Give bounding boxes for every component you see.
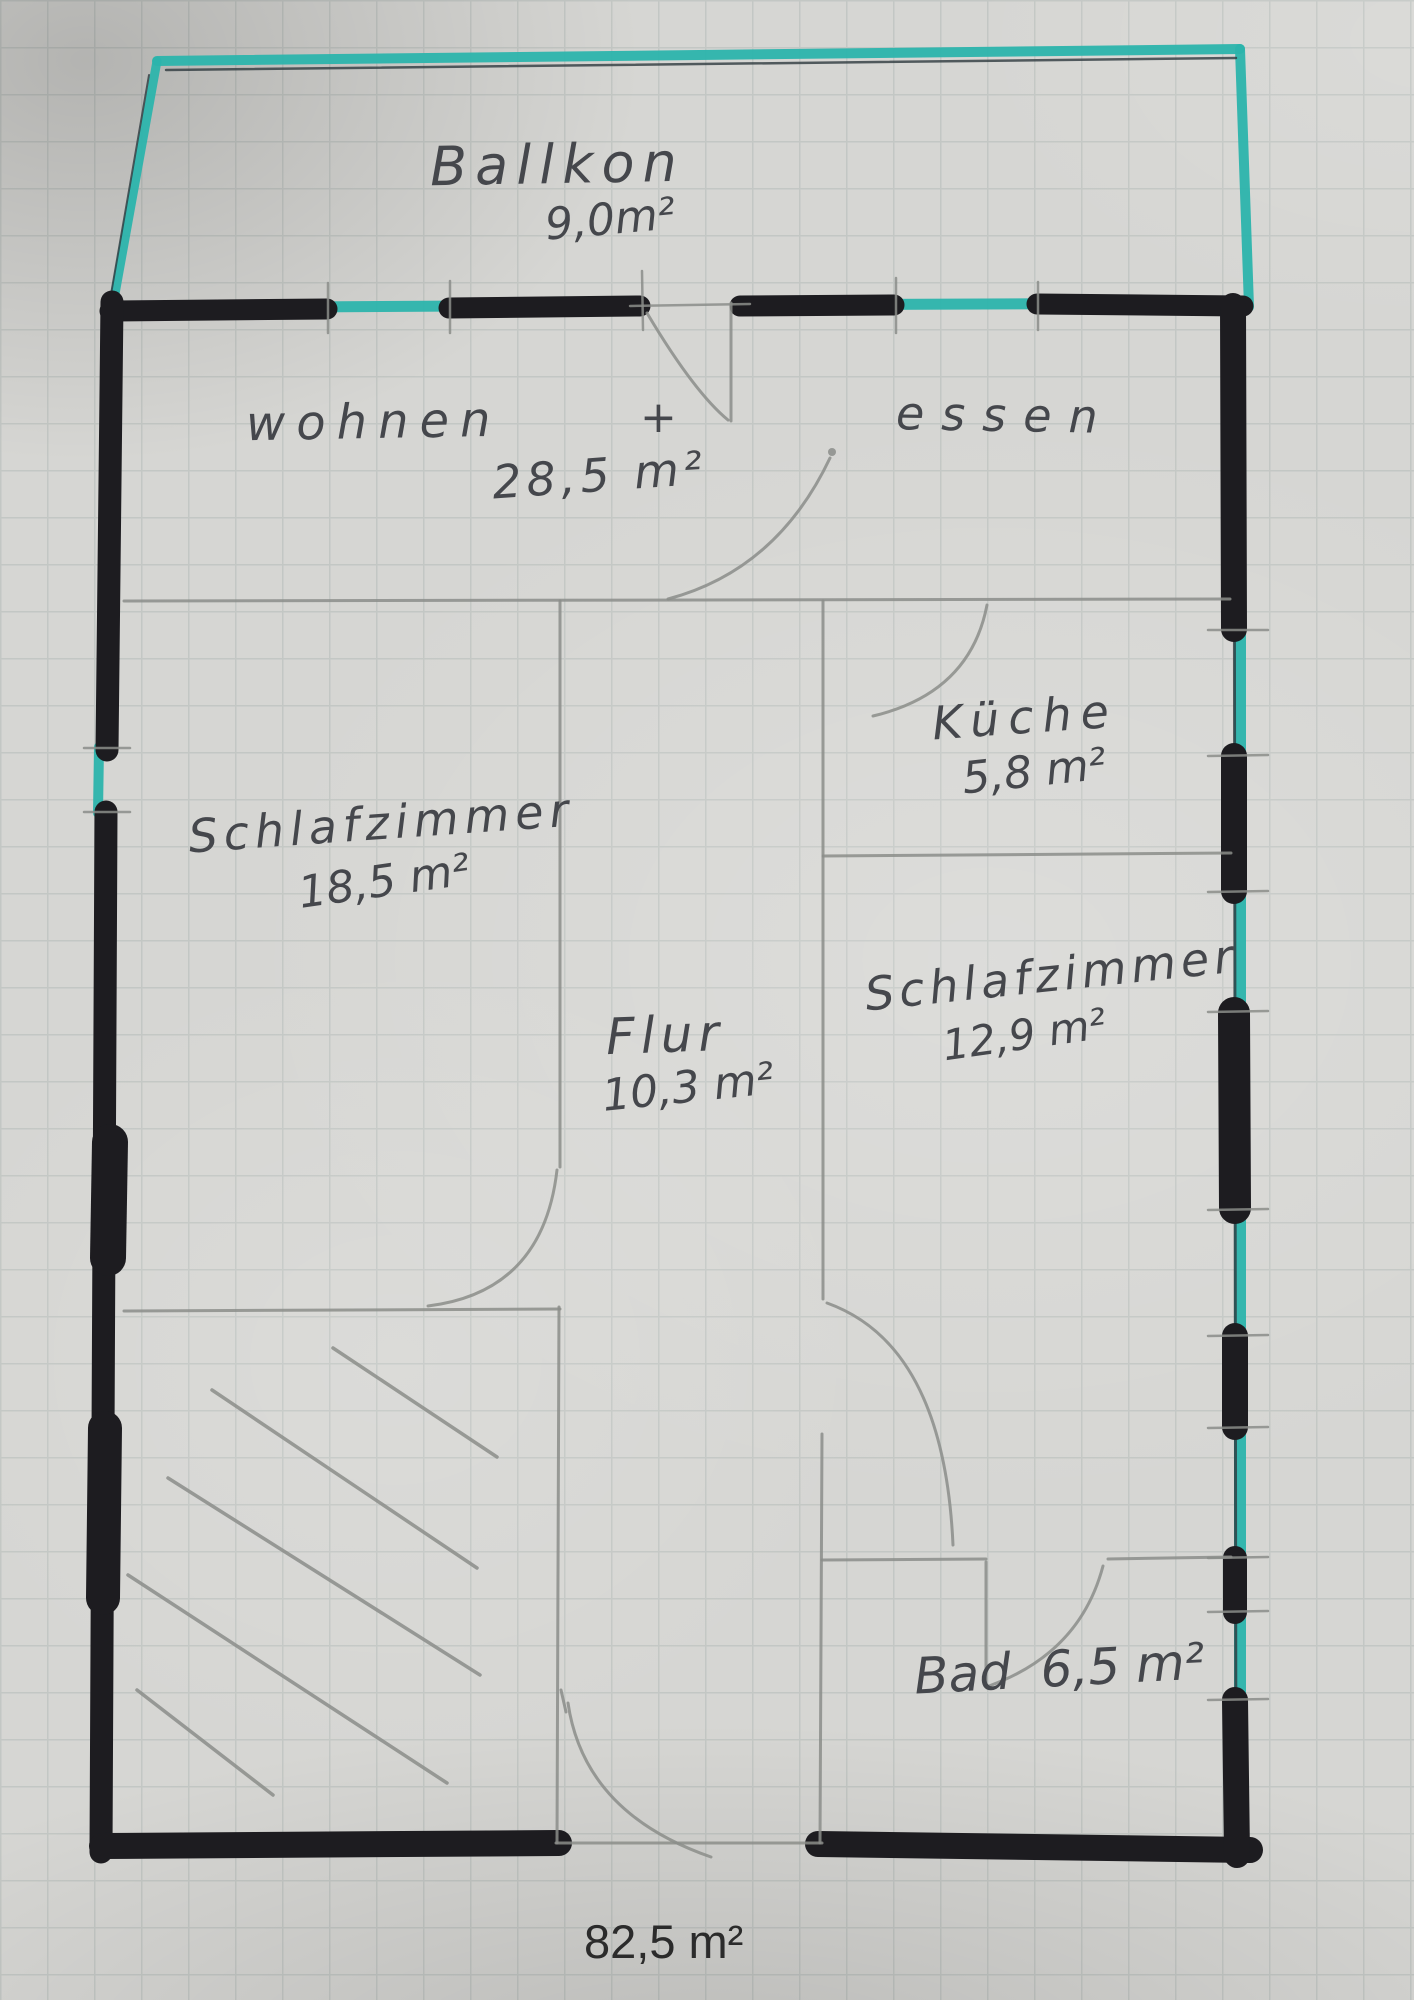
interior-wall-living [124, 599, 1230, 601]
wall-segment-left [107, 302, 112, 750]
wall-segment-right [1235, 1700, 1237, 1855]
hatch-line [137, 1690, 273, 1795]
wall-segment-top [110, 309, 327, 311]
tick [1208, 1699, 1268, 1700]
balcony-left-edge [113, 61, 157, 305]
bathroom-name: Bad [913, 1643, 1013, 1706]
interior-wall-hall-left [557, 1307, 559, 1843]
hatch-line [168, 1478, 480, 1675]
room-area-balcony: 9,0m² [543, 192, 677, 247]
floor-plan-drawing [0, 0, 1414, 2000]
room-label-living: wohnen [246, 396, 502, 448]
tick [1208, 1335, 1268, 1336]
tick [642, 271, 643, 330]
interior-wall-kitchen [823, 853, 1231, 856]
tick [1208, 1611, 1268, 1612]
hatch-line [333, 1348, 497, 1457]
bathroom-area: 6,5 m² [1039, 1632, 1206, 1699]
interior-wall-bath [822, 1559, 986, 1560]
wall-segment-top [449, 306, 640, 308]
door-hinge-tick [561, 1690, 566, 1712]
door-arc [428, 1170, 557, 1306]
door-arc [827, 1303, 953, 1545]
floor-plan-photo: { "colors": { "paper": "#d6d6d3", "grid-… [0, 0, 1414, 2000]
wall-blob-left [108, 1142, 110, 1258]
balcony-right-edge [1240, 49, 1249, 307]
tick [1208, 755, 1268, 756]
total-area-label: 82,5 m² [584, 1918, 743, 1965]
room-label-dining: essen [896, 390, 1115, 440]
tick [1208, 891, 1268, 892]
wall-segment-right [1233, 306, 1234, 629]
hatch-line [128, 1575, 447, 1783]
room-label-bathroom: Bad 6,5 m² [913, 1636, 1206, 1701]
balcony-left-pen-line [110, 75, 149, 300]
wall-segment-right [1234, 1013, 1235, 1208]
tick [1208, 1011, 1268, 1012]
interior-wall-bedroom-left [124, 1309, 560, 1311]
tick [1208, 1427, 1268, 1428]
wall-segment-top [740, 305, 894, 306]
room-label-balcony: Ballkon [430, 136, 686, 194]
room-label-hallway: Flur [605, 1008, 726, 1062]
tick [1208, 1557, 1268, 1558]
wall-blob-left [103, 1428, 105, 1598]
door-hinge-dot [828, 448, 836, 456]
interior-wall-hall-right [820, 1434, 822, 1843]
hatching [128, 1348, 497, 1795]
door-arc [568, 1703, 711, 1857]
room-label-kitchen: Küche [931, 688, 1120, 747]
plus-sign: + [640, 396, 677, 440]
wall-segment-bottom [102, 1843, 559, 1846]
wall-segment-bottom [818, 1844, 1250, 1850]
tick [1208, 1209, 1268, 1210]
wall-segment-left [101, 812, 106, 1852]
wall-segment-top [1037, 304, 1243, 306]
room-area-living: 28,5 m² [491, 445, 709, 506]
